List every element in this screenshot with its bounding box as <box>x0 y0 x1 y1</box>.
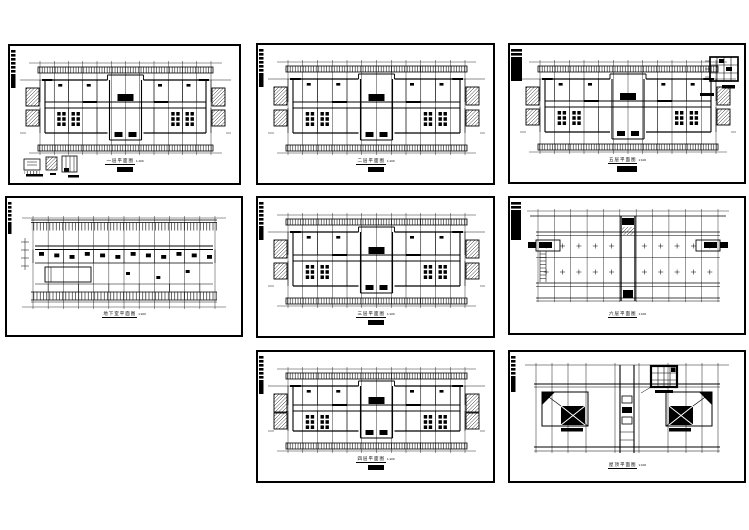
drawing-scale: 1:100 <box>638 158 646 162</box>
drawing-title: 屋顶平面图 <box>608 462 638 469</box>
drawing-caption: 地下室平面图1:100 <box>7 311 241 317</box>
drawing-sheet-grid: 一层平面图1:100 二层平面图1:100 五层平面图1:100 地下室平面图1… <box>0 0 749 530</box>
drawing-title: 地下室平面图 <box>102 311 137 318</box>
drawing-caption: 一层平面图1:100 <box>10 158 239 164</box>
caption-text-block <box>368 167 384 172</box>
drawing-title: 五层平面图 <box>608 157 638 164</box>
drawing-scale: 1:100 <box>138 312 146 316</box>
drawing-caption: 四层平面图1:100 <box>258 456 493 462</box>
drawing-title: 四层平面图 <box>356 456 386 463</box>
caption-text-block <box>368 465 384 470</box>
drawing-caption: 五层平面图1:100 <box>510 157 744 163</box>
drawing-panel-second-floor[interactable]: 二层平面图1:100 <box>256 43 495 185</box>
drawing-scale: 1:100 <box>638 463 646 467</box>
drawing-scale: 1:100 <box>638 312 646 316</box>
caption-text-block <box>117 167 133 172</box>
drawing-panel-basement[interactable]: 地下室平面图1:100 <box>5 196 243 337</box>
drawing-caption: 六层平面图1:100 <box>510 311 744 317</box>
drawing-title: 六层平面图 <box>608 311 638 318</box>
drawing-panel-fifth-floor[interactable]: 五层平面图1:100 <box>508 43 746 184</box>
drawing-scale: 1:100 <box>387 159 395 163</box>
caption-text-block <box>617 166 637 172</box>
drawing-title: 二层平面图 <box>356 158 386 165</box>
drawing-caption: 三层平面图1:100 <box>258 311 493 317</box>
drawing-scale: 1:100 <box>387 312 395 316</box>
drawing-panel-roof[interactable]: 屋顶平面图1:100 <box>508 350 746 483</box>
drawing-title: 一层平面图 <box>105 158 135 165</box>
drawing-panel-third-floor[interactable]: 三层平面图1:100 <box>256 196 495 338</box>
drawing-scale: 1:100 <box>136 159 144 163</box>
caption-text-block <box>368 320 384 325</box>
drawing-title: 三层平面图 <box>356 311 386 318</box>
drawing-panel-sixth-floor[interactable]: 六层平面图1:100 <box>508 196 746 335</box>
drawing-panel-first-floor[interactable]: 一层平面图1:100 <box>8 44 241 185</box>
drawing-caption: 屋顶平面图1:100 <box>510 462 744 468</box>
drawing-caption: 二层平面图1:100 <box>258 158 493 164</box>
drawing-scale: 1:100 <box>387 457 395 461</box>
drawing-panel-fourth-floor[interactable]: 四层平面图1:100 <box>256 350 495 483</box>
